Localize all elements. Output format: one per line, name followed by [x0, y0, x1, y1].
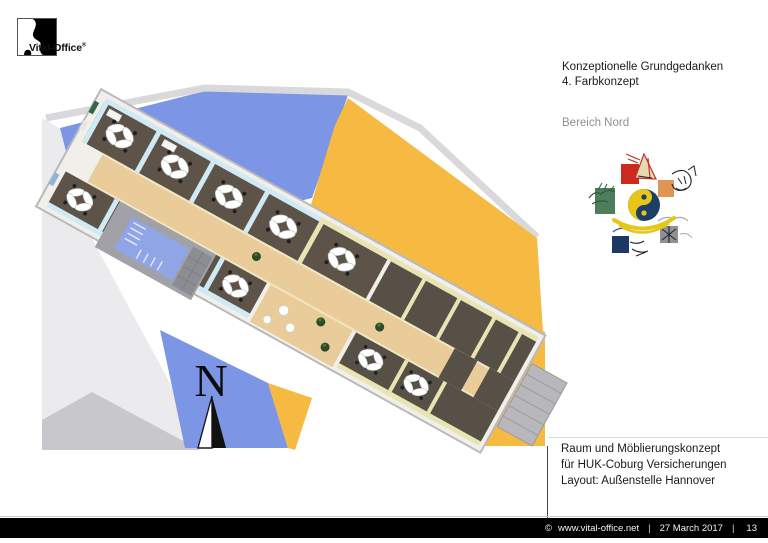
- footer-date: 27 March 2017: [660, 523, 723, 534]
- footer-website[interactable]: www.vital-office.net: [558, 523, 639, 534]
- element-earth-icon: [658, 166, 696, 197]
- footer-bar: © www.vital-office.net | 27 March 2017 |…: [0, 518, 768, 538]
- element-wood-icon: [589, 183, 615, 214]
- presentation-slide: N Vital-Office® Konzeptionelle Grundgeda…: [0, 0, 768, 543]
- five-elements-diagram: [588, 146, 746, 264]
- logo-wordmark: Vital-Office®: [29, 42, 86, 54]
- footer-hairline: [0, 516, 768, 517]
- project-info-line2: für HUK-Coburg Versicherungen: [561, 457, 727, 473]
- divider-line-horizontal: [548, 437, 768, 438]
- footer-separator: |: [732, 523, 734, 534]
- footer-separator: |: [648, 523, 650, 534]
- project-info-line3: Layout: Außenstelle Hannover: [561, 473, 727, 489]
- element-metal-icon: [658, 217, 692, 243]
- slide-title: Konzeptionelle Grundgedanken 4. Farbkonz…: [562, 60, 723, 90]
- section-label: Bereich Nord: [562, 117, 629, 129]
- divider-line-vertical: [547, 446, 548, 518]
- slide-title-line1: Konzeptionelle Grundgedanken: [562, 60, 723, 75]
- slide-title-line2: 4. Farbkonzept: [562, 75, 723, 90]
- footer-page-number: 13: [746, 523, 757, 534]
- copyright-symbol: ©: [545, 523, 552, 534]
- vital-office-logo: Vital-Office®: [17, 18, 137, 62]
- element-fire-icon: [621, 154, 656, 184]
- project-info: Raum und Möblierungskonzept für HUK-Cobu…: [561, 441, 727, 489]
- project-info-line1: Raum und Möblierungskonzept: [561, 441, 727, 457]
